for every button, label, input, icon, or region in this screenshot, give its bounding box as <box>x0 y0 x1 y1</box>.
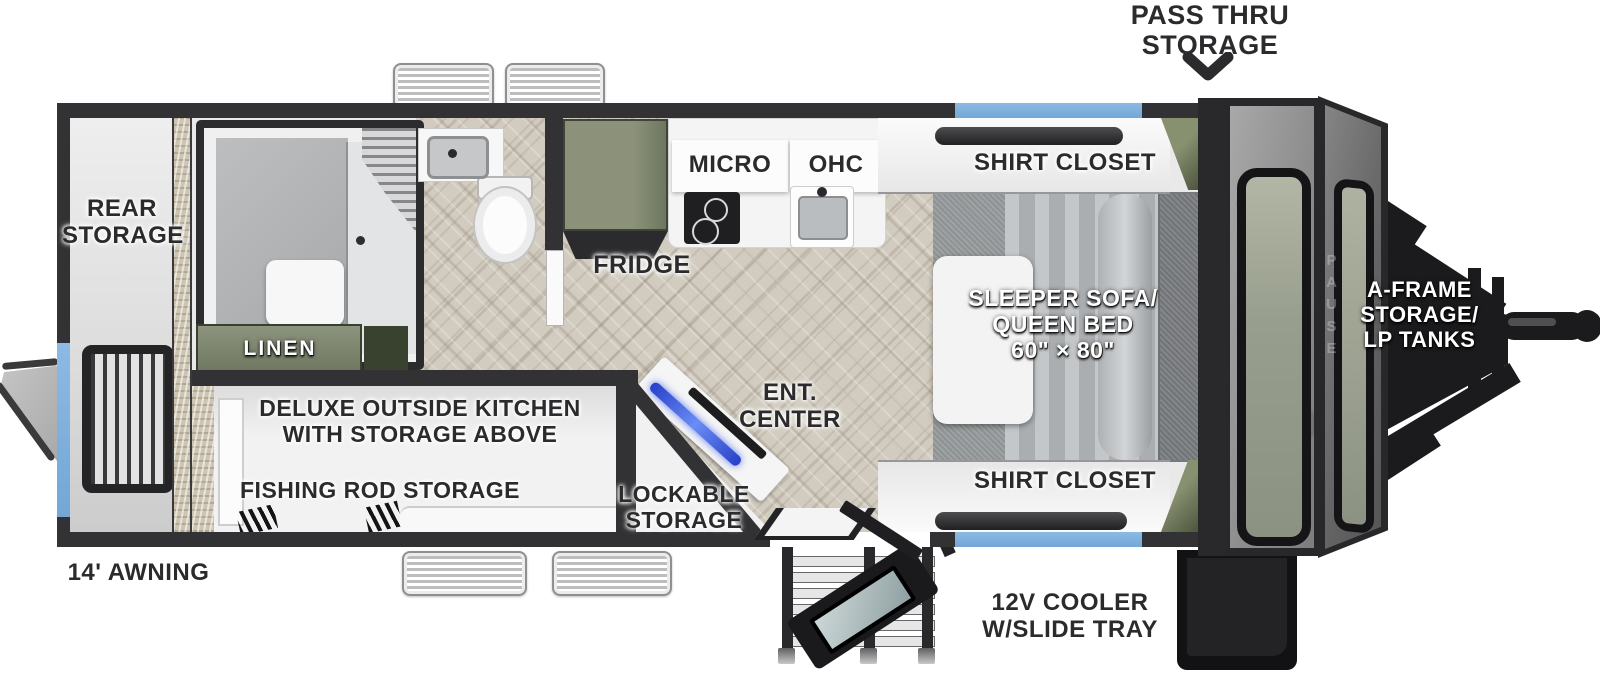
fridge <box>563 119 668 231</box>
coupler-knob <box>1572 310 1600 342</box>
bath-sink <box>427 136 489 179</box>
floorplan-diagram: PAUSE <box>0 0 1600 677</box>
cap-seam-wall <box>1198 98 1226 556</box>
shirt-closet-top-label: SHIRT CLOSET <box>958 150 1172 177</box>
sleeper-sofa-label: SLEEPER SOFA/ QUEEN BED 60" × 80" <box>948 285 1178 363</box>
outside-kitchen-label: DELUXE OUTSIDE KITCHEN WITH STORAGE ABOV… <box>235 396 605 448</box>
pass-thru-door <box>1237 168 1311 546</box>
sink-basin <box>798 196 848 240</box>
window-rear <box>57 343 70 517</box>
kitchen-sink <box>790 186 854 248</box>
lockable-storage-label: LOCKABLE STORAGE <box>614 482 754 534</box>
faucet-icon <box>817 187 827 197</box>
step-foot <box>918 648 935 664</box>
chevron-down-icon <box>1182 52 1234 84</box>
closet-rod <box>935 512 1127 530</box>
shirt-closet-bottom-label: SHIRT CLOSET <box>958 468 1172 495</box>
linen-side-cabinet <box>364 326 408 374</box>
coupler-highlight <box>1508 318 1556 326</box>
cooler-tray <box>1177 550 1297 670</box>
ohc-label: OHC <box>790 152 882 179</box>
fishing-rod-label: FISHING ROD STORAGE <box>230 478 530 504</box>
pass-thru-door <box>1334 178 1374 534</box>
step-foot <box>860 648 877 664</box>
micro-label: MICRO <box>672 152 788 179</box>
shower-door-handle <box>356 236 365 245</box>
closet-rod <box>935 127 1123 145</box>
burner-icon <box>692 218 719 245</box>
step-foot <box>778 648 795 664</box>
window-top <box>955 103 1142 118</box>
kitchen-bath-wall <box>172 370 638 386</box>
cooler-tray-inner <box>1187 558 1287 656</box>
stove <box>684 192 740 244</box>
roof-vent-icon <box>552 551 672 596</box>
rear-storage-label: REAR STORAGE <box>62 196 182 250</box>
ent-center-label: ENT. CENTER <box>735 380 845 434</box>
awning-label: 14' AWNING <box>56 560 221 587</box>
stone-pillar <box>192 386 214 532</box>
shower-seat <box>266 260 344 326</box>
stone-wall <box>172 118 192 532</box>
aframe-label: A-FRAME STORAGE/ LP TANKS <box>1352 278 1487 353</box>
faucet-icon <box>448 149 457 158</box>
step-rail <box>782 546 793 652</box>
toilet-bowl <box>473 186 537 264</box>
outside-counter <box>400 506 616 534</box>
fridge-label: FRIDGE <box>582 251 702 279</box>
bathroom-wall <box>545 118 563 250</box>
window-bottom <box>955 532 1142 547</box>
linen-label: LINEN <box>210 337 350 361</box>
cooler-label: 12V COOLER W/SLIDE TRAY <box>975 590 1165 644</box>
rear-screen-door <box>82 345 174 493</box>
pocket-door <box>546 250 564 326</box>
brand-label: PAUSE <box>1318 252 1340 412</box>
roof-vent-icon <box>402 551 527 596</box>
